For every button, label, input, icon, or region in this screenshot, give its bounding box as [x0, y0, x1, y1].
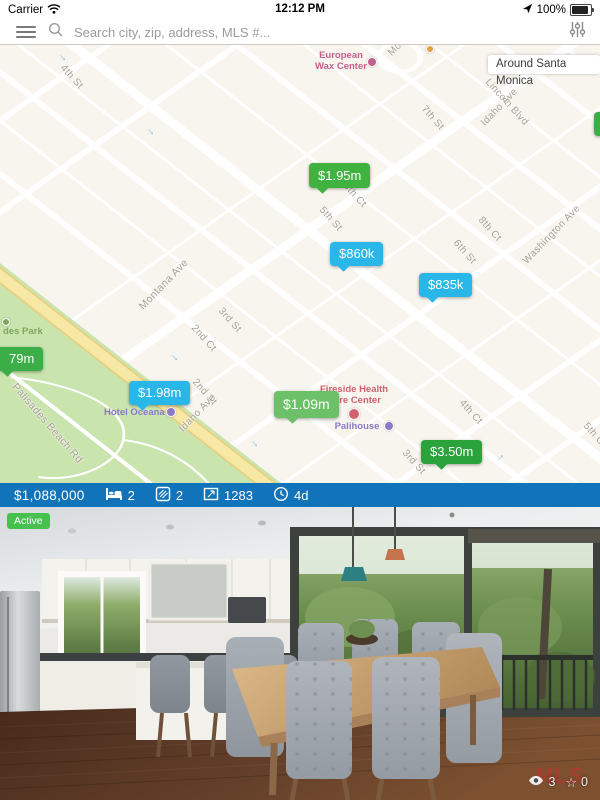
app-screen: Carrier 12:12 PM 100%	[0, 0, 600, 800]
listing-price: $1,088,000	[14, 488, 85, 503]
poi-icon	[348, 408, 360, 420]
clock-time: 12:12 PM	[0, 3, 600, 15]
price-pin[interactable]: $835k	[419, 273, 472, 297]
saves-stat[interactable]: ☆ 0	[565, 775, 588, 789]
battery-icon	[570, 4, 592, 16]
days-on-market-stat: 4d	[273, 486, 308, 505]
poi-icon	[367, 57, 377, 67]
listing-summary-bar[interactable]: $1,088,000 2 2 1283 4d	[0, 483, 600, 507]
price-pin[interactable]: $1.98m	[129, 381, 190, 405]
poi-label: Palihouse	[332, 422, 382, 433]
pin-label: $860k	[339, 246, 374, 261]
poi-european-wax-center: European Wax Center	[312, 51, 370, 72]
saves-count: 0	[581, 775, 588, 789]
filters-button[interactable]	[569, 21, 586, 43]
menu-button[interactable]	[16, 26, 36, 38]
beds-stat: 2	[105, 487, 135, 504]
bath-icon	[155, 486, 171, 505]
poi-icon	[166, 407, 176, 417]
star-icon[interactable]: ☆	[565, 776, 577, 789]
sqft-value: 1283	[224, 488, 253, 503]
eye-icon	[528, 775, 544, 789]
sqft-icon	[203, 486, 219, 505]
search-input[interactable]	[72, 21, 569, 43]
poi-icon	[2, 318, 10, 326]
sqft-stat: 1283	[203, 486, 253, 505]
poi-label: Wax Center	[312, 62, 370, 73]
baths-stat: 2	[155, 486, 183, 505]
bed-icon	[105, 487, 123, 504]
pin-label: $1.95m	[318, 168, 361, 183]
listing-photo[interactable]: Active MLS 3 ☆ 0	[0, 507, 600, 800]
poi-label: Hotel Oceana	[104, 408, 164, 419]
battery-percent: 100%	[537, 4, 566, 16]
pin-label: 79m	[9, 351, 34, 366]
status-bar: Carrier 12:12 PM 100%	[0, 0, 600, 20]
status-badge: Active	[7, 513, 50, 529]
poi-icon	[426, 45, 434, 53]
price-pin[interactable]: 79m	[0, 347, 43, 371]
views-count: 3	[548, 775, 555, 789]
price-pin[interactable]: $860k	[330, 242, 383, 266]
pin-label: $1.98m	[138, 385, 181, 400]
beds-count: 2	[128, 488, 135, 503]
area-chip: Around Santa Monica	[488, 55, 600, 74]
photo-stats: 3 ☆ 0	[528, 775, 588, 789]
search-bar	[0, 20, 600, 45]
poi-palisades-park: des Park	[3, 327, 57, 338]
clock-icon	[273, 486, 289, 505]
poi-label: des Park	[3, 327, 57, 338]
map-view[interactable]: 4th St Montana Ave 7th St Lincoln Blvd I…	[0, 45, 600, 483]
days-on-market-value: 4d	[294, 488, 308, 503]
poi-label: European	[312, 51, 370, 62]
price-pin[interactable]	[594, 112, 600, 136]
pin-label: $835k	[428, 277, 463, 292]
pin-label: $3.50m	[430, 444, 473, 459]
price-pin[interactable]: $1.09m	[274, 391, 339, 418]
poi-hotel-oceana: Hotel Oceana	[104, 408, 164, 419]
poi-icon	[384, 421, 394, 431]
price-pin[interactable]: $3.50m	[421, 440, 482, 464]
location-arrow-icon	[522, 3, 533, 17]
search-icon	[48, 22, 64, 43]
poi-palihouse: Palihouse	[332, 422, 382, 433]
baths-count: 2	[176, 488, 183, 503]
pin-label: $1.09m	[283, 396, 330, 412]
price-pin[interactable]: $1.95m	[309, 163, 370, 188]
photo-scene	[0, 507, 600, 800]
views-stat: 3	[528, 775, 555, 789]
